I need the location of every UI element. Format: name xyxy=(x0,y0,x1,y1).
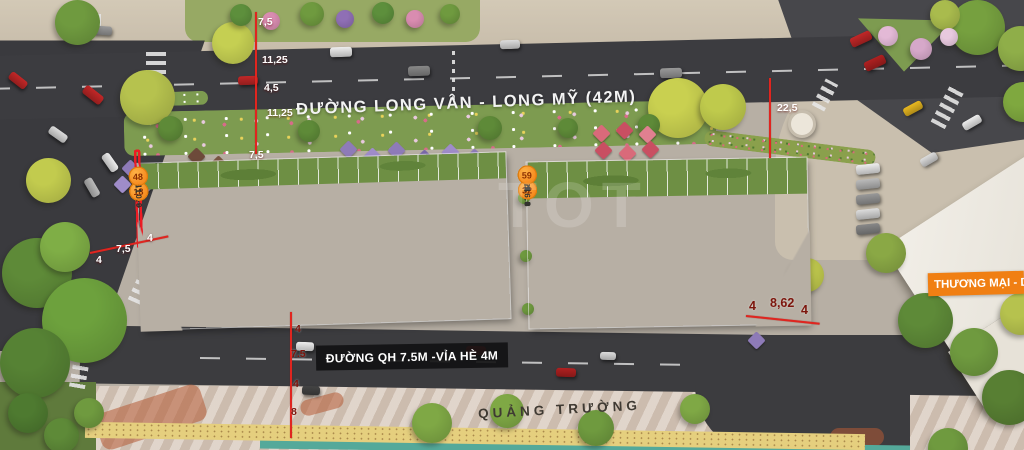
car xyxy=(556,368,576,378)
tree xyxy=(680,394,710,424)
car xyxy=(600,352,616,361)
lot-number-badge: 48 xyxy=(128,167,148,187)
car xyxy=(500,40,520,50)
tree xyxy=(878,26,898,46)
tree xyxy=(298,120,320,142)
fountain xyxy=(788,110,816,138)
tree xyxy=(412,403,452,443)
lot-48: 95.648 xyxy=(137,164,138,167)
car xyxy=(660,68,682,79)
tree xyxy=(930,0,960,30)
tree xyxy=(898,293,953,348)
tree xyxy=(700,84,746,130)
commercial-banner: THƯƠNG MẠI - DỊ xyxy=(928,271,1024,297)
lot-number-badge: 59 xyxy=(517,165,536,184)
tree xyxy=(406,10,424,28)
car xyxy=(302,386,320,396)
block-a: 01138.00296.50397.00497.40598.00698.5079… xyxy=(137,152,510,329)
tree xyxy=(372,2,394,24)
car xyxy=(296,342,314,352)
tree xyxy=(478,116,502,140)
tree xyxy=(910,38,932,60)
tree xyxy=(74,398,104,428)
tree xyxy=(558,118,578,138)
tree xyxy=(26,158,71,203)
tree xyxy=(40,222,90,272)
car xyxy=(408,66,430,77)
qh-road-label: ĐƯỜNG QH 7.5M -VỈA HÈ 4M xyxy=(316,342,508,370)
dimension-line-top xyxy=(255,12,257,154)
tree xyxy=(866,233,906,273)
tree xyxy=(8,393,48,433)
dimension-line-right xyxy=(769,78,771,158)
lot-59: 189.659 xyxy=(527,162,528,165)
tree xyxy=(230,4,252,26)
tree xyxy=(0,328,70,398)
tree xyxy=(262,12,280,30)
car xyxy=(330,47,352,58)
block-b-corner-cut xyxy=(754,230,812,327)
tree xyxy=(336,10,354,28)
tree xyxy=(940,28,958,46)
tree xyxy=(158,116,183,141)
block-b-garden xyxy=(527,158,808,199)
block-b: 19110.020110.021110.022110.023110.024110… xyxy=(527,158,810,329)
tree xyxy=(300,2,324,26)
tree xyxy=(44,418,79,450)
tree xyxy=(950,328,998,376)
tree xyxy=(212,22,254,64)
tree xyxy=(440,4,460,24)
crosswalk xyxy=(452,50,455,100)
site-plan-map: 01138.00296.50397.00497.40598.00698.5079… xyxy=(0,0,1024,450)
tree xyxy=(55,0,100,45)
dimension-line-bottom-left xyxy=(290,312,292,438)
